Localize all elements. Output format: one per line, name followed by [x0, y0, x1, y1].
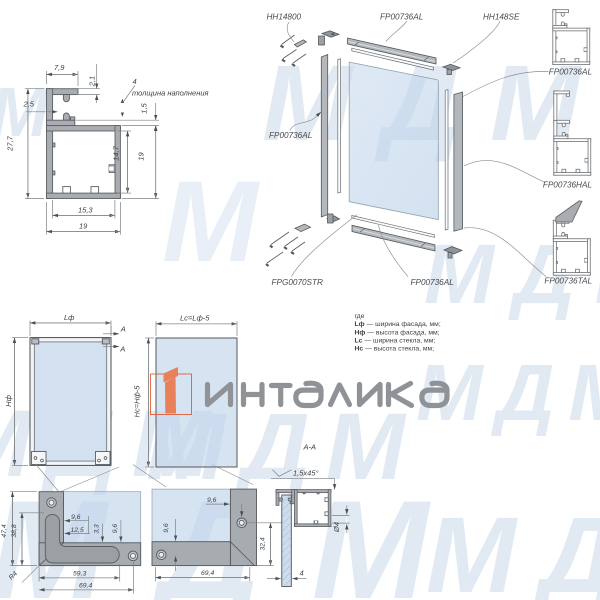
svg-text:Lф: Lф [64, 313, 75, 322]
svg-text:69,4: 69,4 [79, 582, 92, 589]
svg-text:где: где [355, 313, 365, 320]
svg-text:Lc=Lф-5: Lc=Lф-5 [180, 314, 210, 323]
svg-text:14,7: 14,7 [112, 145, 121, 160]
svg-text:FPG0070STR: FPG0070STR [272, 278, 324, 287]
svg-text:59,3: 59,3 [73, 570, 86, 577]
svg-text:HH14800: HH14800 [267, 13, 302, 22]
svg-text:М: М [162, 158, 260, 286]
svg-text:32,4: 32,4 [260, 537, 267, 550]
svg-text:27,7: 27,7 [6, 135, 15, 151]
svg-text:A: A [119, 344, 125, 353]
svg-text:Lc — ширина стекла, мм;: Lc — ширина стекла, мм; [355, 337, 436, 344]
svg-text:HH148SE: HH148SE [483, 13, 520, 22]
svg-text:FP00736AL: FP00736AL [549, 68, 592, 77]
svg-text:4: 4 [133, 77, 137, 86]
svg-text:9,6: 9,6 [112, 524, 119, 534]
svg-text:Hc=Hф-5: Hc=Hф-5 [133, 385, 142, 418]
svg-text:38,8: 38,8 [11, 524, 18, 537]
svg-text:FP00736AL: FP00736AL [269, 131, 312, 140]
svg-text:1,5: 1,5 [140, 102, 149, 113]
svg-text:9,6: 9,6 [71, 514, 81, 521]
svg-text:15,3: 15,3 [78, 206, 93, 215]
svg-text:Ø4: Ø4 [332, 522, 341, 533]
svg-text:Нф — высота фасада, мм;: Нф — высота фасада, мм; [355, 329, 440, 336]
svg-text:Hф: Hф [4, 394, 13, 406]
svg-text:19: 19 [136, 152, 145, 161]
svg-text:3,3: 3,3 [93, 524, 100, 534]
svg-text:МД: МД [426, 494, 600, 600]
svg-text:FP00736HAL: FP00736HAL [543, 181, 592, 190]
svg-text:12,5: 12,5 [71, 527, 84, 534]
svg-text:A: A [120, 324, 126, 333]
svg-text:Нс — высота стекла, мм;: Нс — высота стекла, мм; [355, 346, 435, 353]
svg-text:47,4: 47,4 [1, 524, 8, 537]
svg-text:A-A: A-A [303, 443, 317, 452]
svg-text:FP00736AL: FP00736AL [380, 13, 423, 22]
svg-text:1,5x45°: 1,5x45° [293, 468, 319, 477]
svg-text:Lф — ширина фасада, мм;: Lф — ширина фасада, мм; [355, 321, 441, 328]
svg-text:2,5: 2,5 [23, 100, 35, 109]
svg-text:9,6: 9,6 [207, 497, 217, 504]
svg-text:19: 19 [79, 222, 88, 231]
svg-text:4: 4 [300, 569, 304, 578]
svg-text:толщина наполнения: толщина наполнения [132, 89, 209, 98]
svg-text:2,1: 2,1 [88, 76, 97, 87]
svg-text:7,9: 7,9 [54, 63, 65, 72]
svg-text:FP00736AL: FP00736AL [411, 278, 454, 287]
svg-text:9,6: 9,6 [163, 523, 170, 533]
svg-text:69,4: 69,4 [201, 570, 214, 577]
svg-text:FP00736TAL: FP00736TAL [544, 277, 592, 286]
